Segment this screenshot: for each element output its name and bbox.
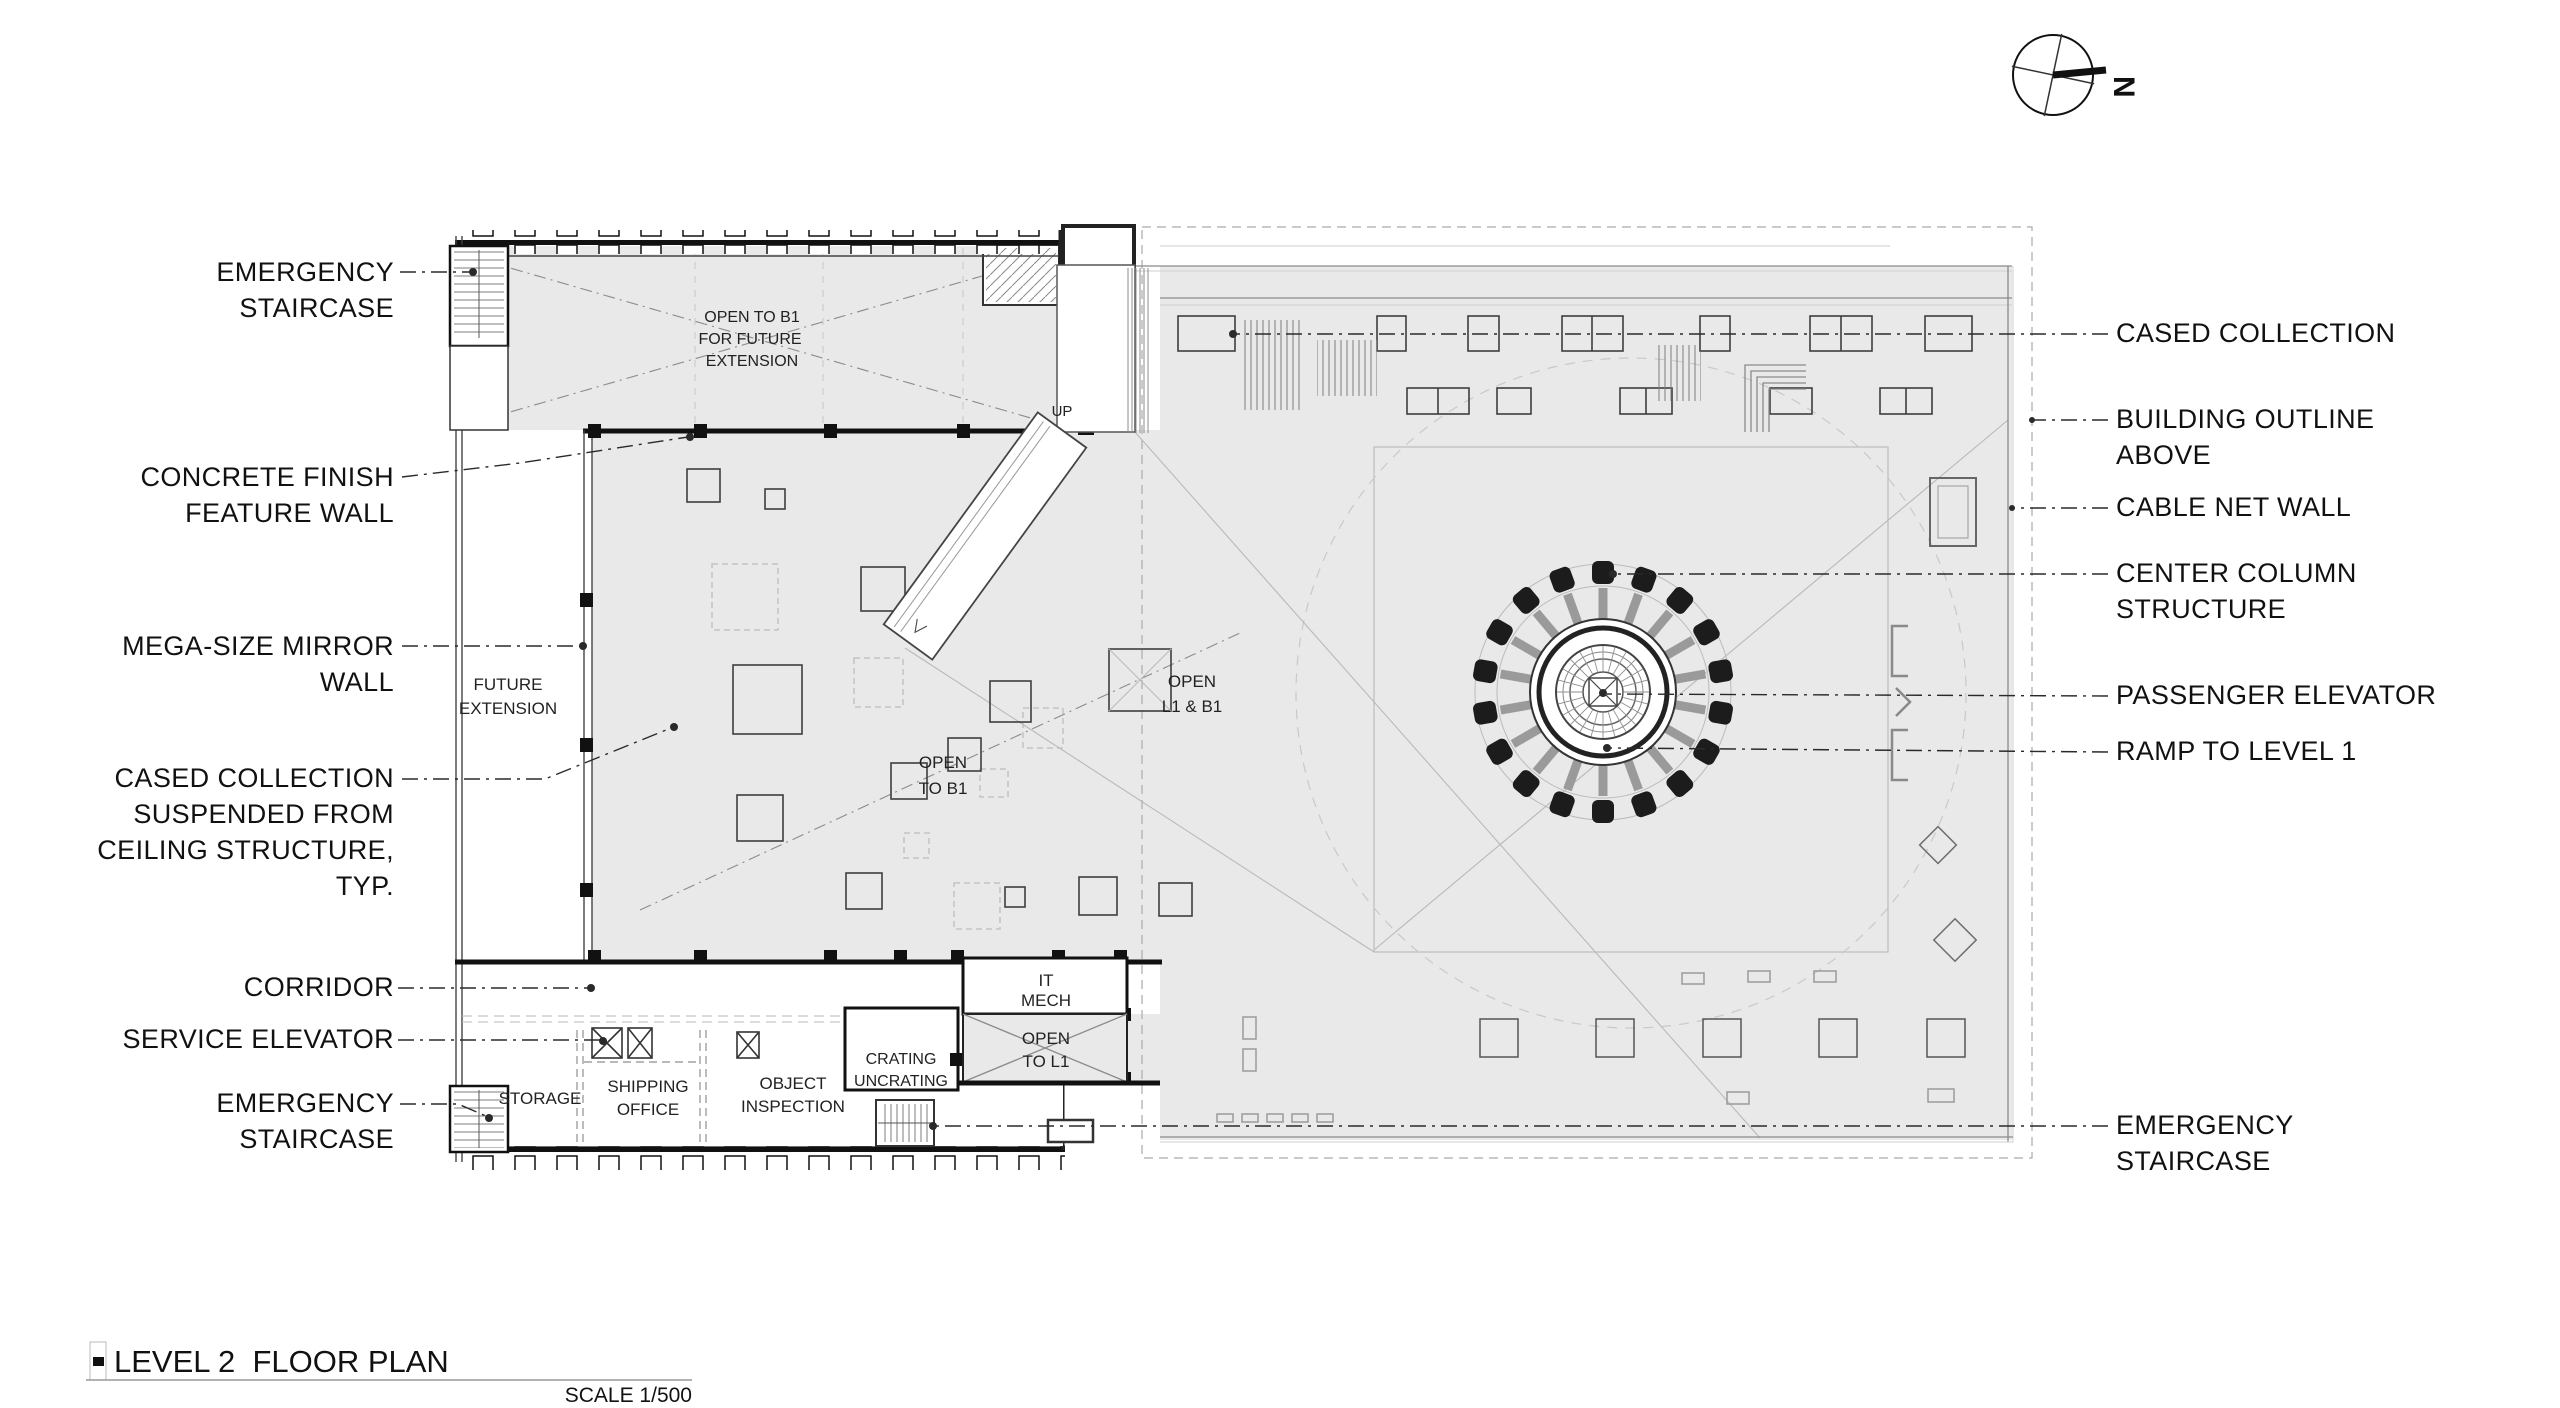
label-shipping-office-2: OFFICE [617, 1100, 679, 1119]
label-passenger-elevator: PASSENGER ELEVATOR [2116, 680, 2436, 710]
label-up: UP [1052, 403, 1073, 420]
label-mirror-wall-2: WALL [320, 667, 394, 697]
label-corridor: CORRIDOR [244, 972, 394, 1002]
label-storage: STORAGE [499, 1089, 582, 1108]
label-center-column: CENTER COLUMN [2116, 558, 2357, 588]
label-open-to-b1: OPEN [919, 753, 967, 772]
label-emergency-staircase-bottom: EMERGENCY [216, 1088, 394, 1118]
label-emergency-staircase-bottom-2: STAIRCASE [239, 1124, 394, 1154]
label-object-inspection-2: INSPECTION [741, 1097, 845, 1116]
label-mirror-wall: MEGA-SIZE MIRROR [122, 631, 394, 661]
scale-label: SCALE 1/500 [565, 1384, 692, 1407]
label-building-outline-2: ABOVE [2116, 440, 2211, 470]
label-it-mech: IT [1038, 971, 1053, 990]
label-ramp-to-level-1: RAMP TO LEVEL 1 [2116, 736, 2357, 766]
stair-hatch [1317, 340, 1377, 396]
label-cable-net-wall: CABLE NET WALL [2116, 492, 2351, 522]
label-open-l1-b1-2: L1 & B1 [1162, 697, 1223, 716]
emergency-staircase-top-left [450, 246, 508, 430]
right-labels: CASED COLLECTION BUILDING OUTLINE ABOVE … [2116, 318, 2436, 1176]
label-cased-collection: CASED COLLECTION [2116, 318, 2395, 348]
floor-plan-drawing: EMERGENCY STAIRCASE CONCRETE FINISH FEAT… [0, 0, 2560, 1408]
label-open-to-b1-2: TO B1 [919, 779, 968, 798]
stair-hatch [1655, 345, 1701, 401]
shaft-box [1048, 1120, 1093, 1142]
label-open-l1-b1: OPEN [1168, 672, 1216, 691]
label-emergency-staircase-top-2: STAIRCASE [239, 293, 394, 323]
label-open-to-b1-future-2: FOR FUTURE [698, 331, 801, 348]
label-cased-suspended: CASED COLLECTION [115, 763, 394, 793]
page-title: LEVEL 2 FLOOR PLAN [114, 1344, 449, 1379]
title-bullet [93, 1357, 104, 1366]
label-future-extension-2: EXTENSION [459, 699, 557, 718]
label-open-to-l1-2: TO L1 [1023, 1052, 1070, 1071]
label-open-to-l1: OPEN [1022, 1029, 1070, 1048]
label-concrete-finish: CONCRETE FINISH [140, 462, 394, 492]
north-letter: N [2107, 76, 2140, 98]
left-labels: EMERGENCY STAIRCASE CONCRETE FINISH FEAT… [97, 257, 394, 1154]
title-block: LEVEL 2 FLOOR PLAN SCALE 1/500 [86, 1342, 692, 1407]
crenellated-wall-bottom [455, 1146, 1065, 1170]
label-emergency-staircase-right: EMERGENCY [2116, 1110, 2294, 1140]
label-building-outline: BUILDING OUTLINE [2116, 404, 2374, 434]
label-shipping-office: SHIPPING [607, 1077, 688, 1096]
label-cased-suspended-2: SUSPENDED FROM [133, 799, 394, 829]
label-cased-suspended-3: CEILING STRUCTURE, [97, 835, 394, 865]
label-service-elevator: SERVICE ELEVATOR [123, 1024, 395, 1054]
label-crating-2: UNCRATING [854, 1073, 948, 1090]
label-open-to-b1-future: OPEN TO B1 [704, 309, 800, 326]
label-concrete-finish-2: FEATURE WALL [185, 498, 394, 528]
label-center-column-2: STRUCTURE [2116, 594, 2286, 624]
label-emergency-staircase-right-2: STAIRCASE [2116, 1146, 2271, 1176]
label-open-to-b1-future-3: EXTENSION [706, 353, 798, 370]
label-it-mech-2: MECH [1021, 991, 1071, 1010]
crenellated-wall-top [455, 230, 1062, 254]
label-object-inspection: OBJECT [759, 1074, 826, 1093]
label-cased-suspended-4: TYP. [336, 871, 394, 901]
north-compass-icon: N [2003, 25, 2140, 125]
label-emergency-staircase-top: EMERGENCY [216, 257, 394, 287]
label-future-extension: FUTURE [474, 675, 543, 694]
label-crating: CRATING [866, 1051, 937, 1068]
